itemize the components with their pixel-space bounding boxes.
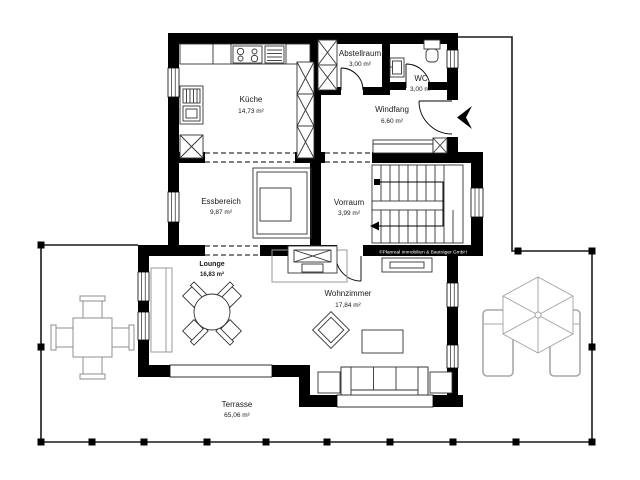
window-kitchen-left	[168, 68, 179, 97]
floor-plan-svg: ©Planreal Immobilien & Bauträger GmbH	[0, 0, 640, 480]
window-stair-right	[471, 188, 483, 217]
toilet-icon	[424, 40, 440, 62]
side-table-right	[430, 372, 452, 393]
window-living-right-1	[447, 283, 458, 307]
label-essbereich: Essbereich	[201, 197, 241, 206]
windfang-bench	[373, 138, 447, 153]
area-terrasse: 65,06 m²	[224, 412, 250, 419]
area-windfang: 6,60 m²	[381, 118, 404, 125]
area-lounge: 16,83 m²	[200, 271, 224, 278]
label-kueche: Küche	[240, 95, 263, 104]
window-living-left-2	[138, 312, 149, 340]
label-wc: WC	[414, 74, 428, 83]
sliding-door-wohnzimmer	[337, 395, 433, 407]
washbasin-icon	[390, 58, 404, 77]
oven-icon	[265, 46, 284, 63]
window-wc-right	[447, 50, 458, 68]
area-kueche: 14,73 m²	[238, 108, 264, 115]
copyright-text: ©Planreal Immobilien & Bauträger GmbH	[379, 249, 467, 256]
label-terrasse: Terrasse	[222, 400, 253, 409]
area-abstellraum: 3,00 m²	[349, 61, 372, 68]
label-vorraum: Vorraum	[334, 198, 365, 207]
area-vorraum: 3,99 m²	[338, 210, 361, 217]
entrance-arrow-icon	[457, 106, 472, 129]
sliding-door-lounge	[170, 365, 272, 377]
terrace-dining-set	[51, 296, 134, 379]
storage-cabinets	[318, 40, 337, 90]
coffee-table	[362, 330, 403, 353]
side-table-left	[318, 372, 340, 393]
label-abstellraum: Abstellraum	[339, 49, 382, 58]
cooktop-icon	[233, 46, 262, 63]
sideboard	[382, 258, 432, 272]
label-wohnzimmer: Wohnzimmer	[325, 289, 372, 298]
area-wohnzimmer: 17,84 m²	[335, 302, 361, 309]
window-essbereich-left	[168, 192, 179, 222]
area-essbereich: 9,87 m²	[210, 209, 233, 216]
floor-plan-page: ©Planreal Immobilien & Bauträger GmbH	[0, 0, 640, 480]
kitchen-sink-icon	[180, 86, 203, 124]
label-windfang: Windfang	[375, 105, 409, 114]
label-lounge: Lounge	[199, 261, 224, 268]
window-living-right-2	[447, 345, 458, 368]
area-wc: 3,00 m²	[410, 86, 433, 93]
window-living-left-1	[138, 272, 149, 301]
terrace-table	[73, 318, 112, 357]
round-table	[194, 294, 230, 330]
